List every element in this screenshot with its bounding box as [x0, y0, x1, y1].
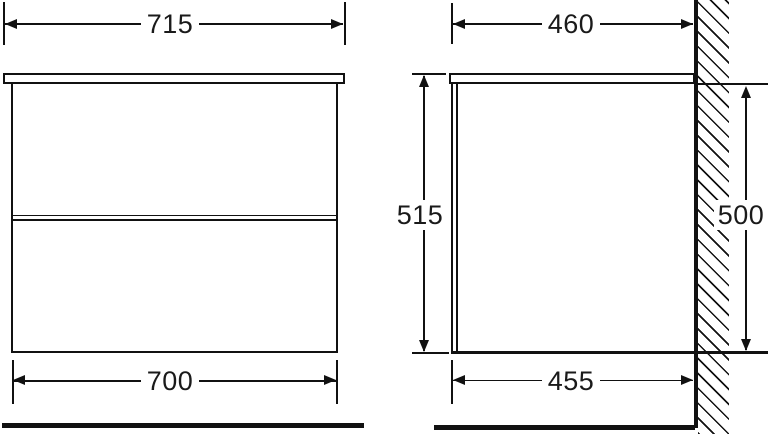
front-drawer-divider-bottom-line — [13, 219, 336, 221]
dim-515-arrow-down-icon — [419, 340, 429, 352]
front-floor-line — [2, 423, 364, 428]
technical-drawing-canvas: 715 700 460 455 515 500 — [0, 0, 768, 434]
dim-455-arrow-left-icon — [453, 375, 465, 385]
side-front-panel-outer-line — [451, 84, 453, 352]
dim-515-extension-bottom — [412, 352, 449, 354]
side-floor-line — [434, 425, 695, 430]
dim-label-countertop-width: 715 — [141, 9, 199, 39]
dim-label-overall-height: 515 — [392, 200, 448, 230]
dim-700-arrow-left-icon — [13, 375, 25, 385]
side-countertop — [449, 73, 695, 84]
dim-715-extension-right — [344, 2, 346, 45]
side-front-panel-inner-line — [456, 84, 458, 352]
dim-515-extension-top — [412, 73, 446, 75]
dim-label-cabinet-width: 700 — [141, 366, 199, 396]
dim-label-cabinet-depth: 455 — [542, 366, 600, 396]
dim-label-cabinet-height: 500 — [714, 200, 768, 230]
dim-715-arrow-left-icon — [5, 19, 17, 29]
dim-500-arrow-down-icon — [741, 339, 751, 351]
dim-455-arrow-right-icon — [681, 375, 693, 385]
dim-700-extension-right — [336, 360, 338, 404]
dim-460-arrow-left-icon — [453, 19, 465, 29]
dim-label-countertop-depth: 460 — [542, 9, 600, 39]
dim-500-arrow-up-icon — [741, 86, 751, 98]
front-countertop — [3, 73, 345, 84]
dim-515-arrow-up-icon — [419, 75, 429, 87]
front-drawer-divider-top-line — [13, 215, 336, 216]
dim-700-arrow-right-icon — [324, 375, 336, 385]
dim-715-arrow-right-icon — [331, 19, 343, 29]
dim-460-arrow-right-icon — [681, 19, 693, 29]
